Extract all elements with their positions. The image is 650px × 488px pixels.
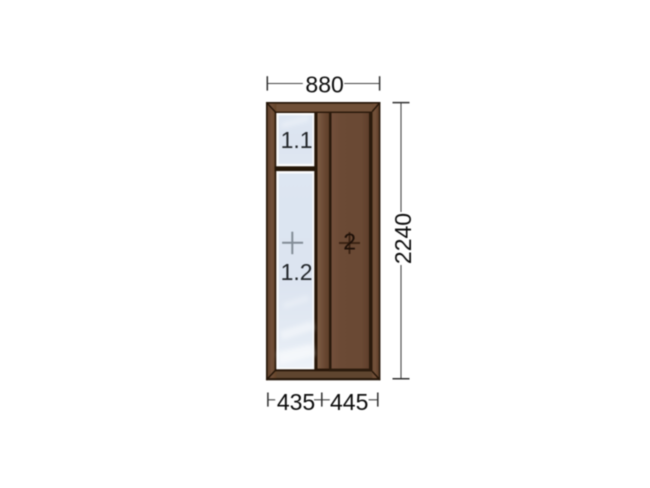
svg-text:445: 445: [330, 389, 368, 415]
svg-text:880: 880: [305, 71, 343, 97]
svg-text:435: 435: [277, 389, 315, 415]
svg-text:1.2: 1.2: [281, 259, 313, 285]
svg-text:2240: 2240: [390, 213, 416, 264]
svg-text:1.1: 1.1: [281, 127, 313, 153]
svg-text:2: 2: [343, 228, 356, 254]
